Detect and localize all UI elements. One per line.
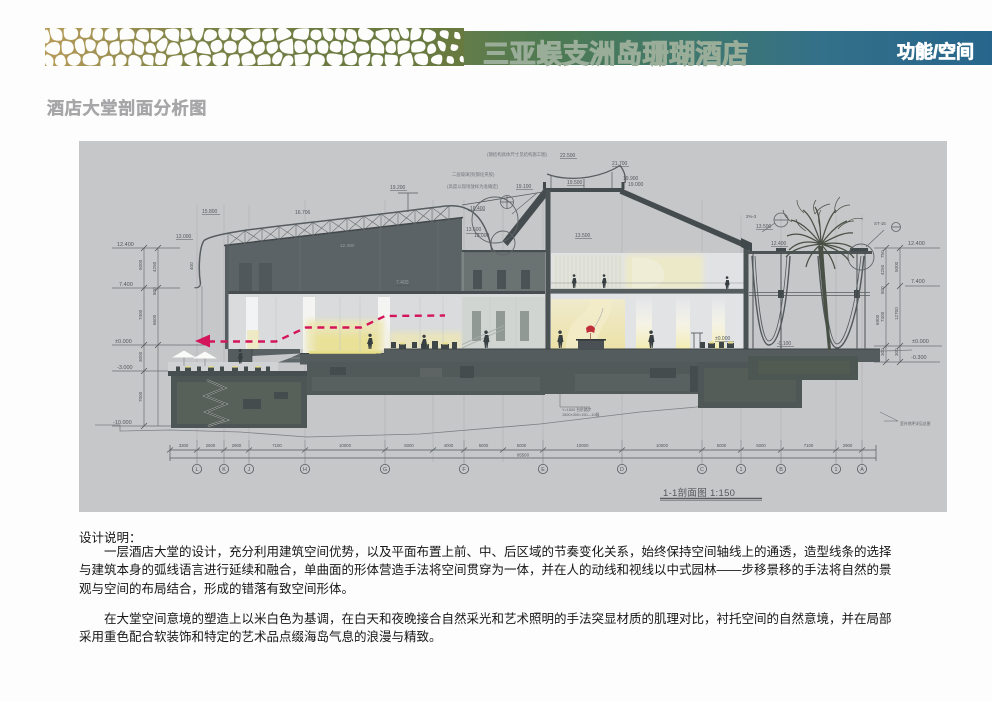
svg-text:ST-15: ST-15	[874, 221, 886, 226]
svg-text:K: K	[222, 467, 226, 473]
svg-text:85500: 85500	[517, 453, 530, 458]
svg-text:1-1剖面图 1:150: 1-1剖面图 1:150	[663, 487, 735, 499]
svg-text:2900: 2900	[843, 443, 853, 448]
svg-text:4000: 4000	[444, 443, 454, 448]
svg-text:19.200: 19.200	[390, 185, 406, 191]
svg-text:5000: 5000	[717, 443, 727, 448]
svg-text:±0.000: ±0.000	[715, 336, 730, 342]
svg-text:7.400: 7.400	[396, 280, 409, 286]
svg-text:7100: 7100	[272, 443, 282, 448]
svg-text:5000: 5000	[756, 443, 766, 448]
svg-text:±0.000: ±0.000	[912, 339, 929, 345]
svg-text:300: 300	[894, 348, 899, 356]
svg-text:13.500: 13.500	[756, 224, 772, 230]
svg-text:10000: 10000	[656, 443, 669, 448]
svg-text:800: 800	[880, 286, 885, 294]
svg-text:12.400: 12.400	[117, 242, 134, 248]
svg-text:12.400: 12.400	[340, 243, 354, 248]
svg-text:A: A	[860, 467, 864, 473]
svg-text:J: J	[248, 467, 251, 473]
svg-text:7.400: 7.400	[119, 282, 133, 288]
svg-text:C: C	[700, 467, 704, 473]
svg-text:15.800: 15.800	[202, 209, 218, 215]
svg-text:16.706: 16.706	[295, 210, 311, 216]
svg-text:7000: 7000	[138, 391, 143, 402]
svg-text:13.000: 13.000	[474, 233, 490, 239]
svg-text:12700: 12700	[894, 307, 899, 320]
svg-text:19.500: 19.500	[567, 180, 583, 186]
svg-text:19.100: 19.100	[516, 184, 532, 190]
svg-text:H: H	[303, 467, 307, 473]
svg-text:-0.300: -0.300	[911, 355, 927, 361]
svg-text:L: L	[196, 467, 199, 473]
svg-text:7400: 7400	[880, 311, 885, 322]
svg-text:2%-3: 2%-3	[746, 214, 757, 219]
svg-text:400: 400	[189, 262, 194, 270]
svg-text:12.400: 12.400	[771, 241, 787, 247]
svg-text:5000: 5000	[894, 261, 899, 272]
svg-text:6600: 6600	[152, 314, 157, 325]
svg-text:3000: 3000	[138, 351, 143, 362]
svg-text:5000: 5000	[138, 259, 143, 270]
svg-text:750: 750	[880, 250, 885, 258]
svg-text:5000: 5000	[517, 443, 527, 448]
svg-text:19.000: 19.000	[628, 182, 644, 188]
svg-text:6900: 6900	[875, 314, 880, 325]
svg-text:2600: 2600	[206, 443, 216, 448]
svg-text:室外地坪详见总图: 室外地坪详见总图	[900, 421, 931, 426]
svg-text:B: B	[779, 467, 783, 473]
svg-text:10000: 10000	[339, 443, 352, 448]
svg-text:6000: 6000	[404, 443, 414, 448]
svg-text:13.500: 13.500	[575, 233, 591, 239]
svg-text:D: D	[620, 467, 624, 473]
svg-text:16.400: 16.400	[470, 206, 486, 212]
svg-text:1500×300×150—10级: 1500×300×150—10级	[562, 412, 600, 417]
svg-text:7.400: 7.400	[911, 279, 925, 285]
svg-text:21.700: 21.700	[612, 161, 628, 167]
svg-text:7100: 7100	[804, 443, 814, 448]
svg-text:-3.000: -3.000	[117, 365, 133, 371]
svg-text:E: E	[541, 467, 545, 473]
svg-text:300: 300	[880, 348, 885, 356]
svg-text:2900: 2900	[232, 443, 242, 448]
svg-text:5000: 5000	[479, 443, 489, 448]
svg-text:12.400: 12.400	[908, 241, 925, 247]
svg-text:10000: 10000	[577, 443, 590, 448]
svg-text:(高度以现场放样为准确定): (高度以现场放样为准确定)	[447, 183, 499, 190]
svg-text:4250: 4250	[880, 264, 885, 275]
svg-text:1: 1	[740, 467, 743, 473]
svg-text:4250: 4250	[152, 261, 157, 272]
svg-text:13.000: 13.000	[176, 234, 192, 240]
svg-text:G: G	[383, 467, 387, 473]
svg-text:3300: 3300	[179, 443, 189, 448]
svg-text:-0.100: -0.100	[777, 341, 791, 347]
svg-text:7400: 7400	[138, 309, 143, 320]
svg-text:(钢结构具体尺寸见结构施工图): (钢结构具体尺寸见结构施工图)	[487, 151, 548, 158]
svg-text:±0.000: ±0.000	[115, 339, 132, 345]
svg-text:二层玻璃顶(钢化夹胶): 二层玻璃顶(钢化夹胶)	[452, 171, 495, 178]
svg-text:800: 800	[152, 287, 157, 295]
svg-text:22.500: 22.500	[560, 153, 576, 159]
svg-text:1: 1	[835, 467, 838, 473]
svg-text:Y=1500 台阶踏步: Y=1500 台阶踏步	[562, 407, 592, 412]
